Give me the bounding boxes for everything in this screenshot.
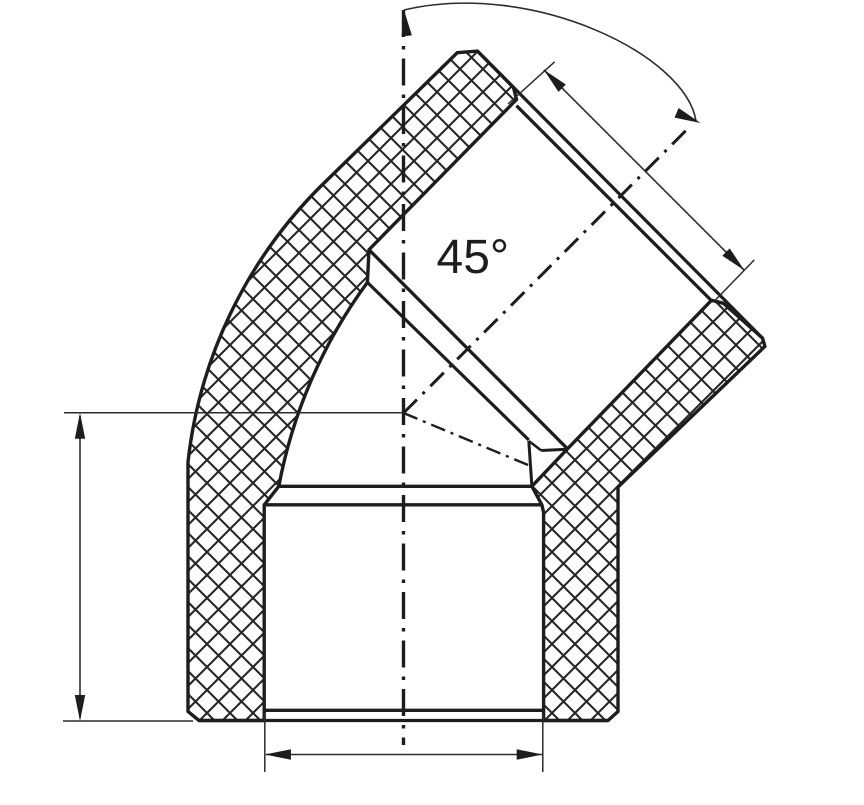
svg-text:45°: 45° [437,231,510,284]
